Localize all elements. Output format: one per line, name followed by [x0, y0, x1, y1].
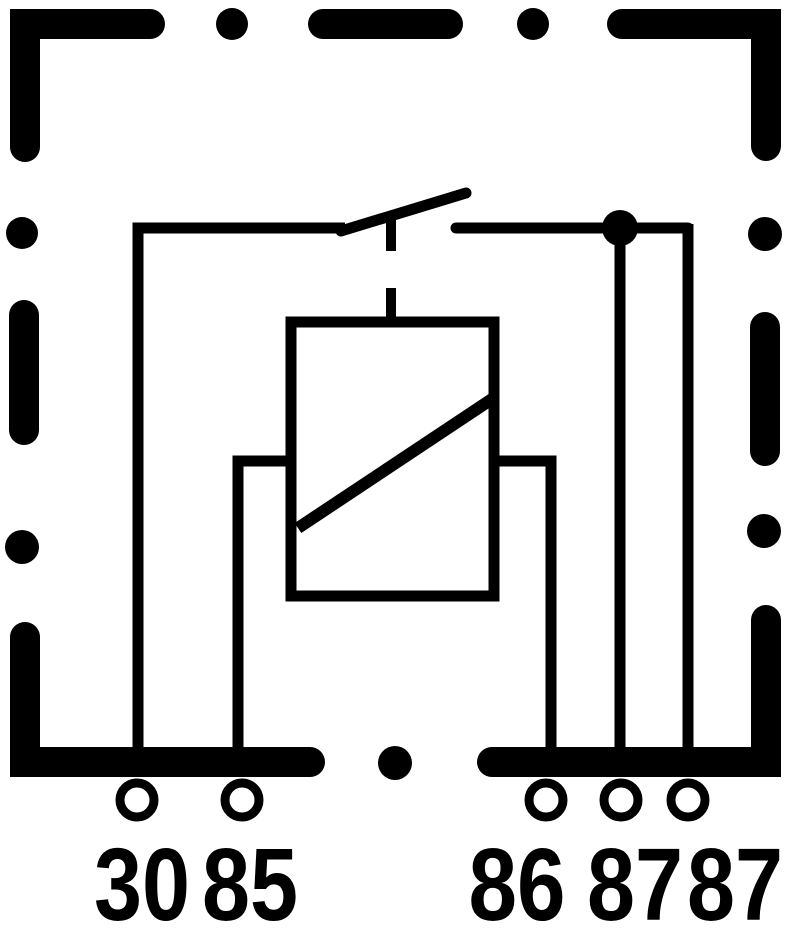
terminal-pin-87b	[671, 783, 705, 817]
border-dot-right-1	[748, 217, 782, 251]
terminal-label-87b: 87	[687, 827, 783, 929]
border-dot-left-2	[5, 530, 39, 564]
border-dot-top-2	[517, 8, 549, 40]
terminal-pin-87a	[604, 783, 638, 817]
junction-dot	[602, 210, 638, 246]
terminal-pins	[120, 783, 705, 817]
terminal-pin-30	[120, 783, 154, 817]
border-corner-top-left	[25, 24, 150, 147]
terminal-labels: 30 85 86 87 87	[94, 827, 783, 929]
relay-circuit	[138, 193, 688, 762]
border-dot-top-1	[216, 8, 248, 40]
wire-terminal-85	[238, 461, 291, 762]
terminal-pin-85	[225, 783, 259, 817]
border-dot-bottom	[378, 746, 412, 780]
border-corner-bottom-right	[492, 620, 766, 762]
wire-terminal-86	[494, 461, 551, 762]
relay-schematic-drawing: 30 85 86 87 87	[0, 0, 800, 929]
border-dot-right-2	[747, 514, 781, 548]
terminal-label-86: 86	[469, 827, 566, 929]
border-dot-left-1	[6, 217, 38, 249]
terminal-label-30: 30	[94, 827, 190, 929]
switch-blade	[341, 193, 466, 231]
border-corner-bottom-left	[25, 637, 310, 762]
terminal-label-87a: 87	[587, 827, 683, 929]
terminal-pin-86	[529, 783, 563, 817]
relay-schematic-page: 30 85 86 87 87	[0, 0, 800, 929]
terminal-label-85: 85	[202, 827, 298, 929]
border-corner-top-right	[622, 24, 766, 146]
